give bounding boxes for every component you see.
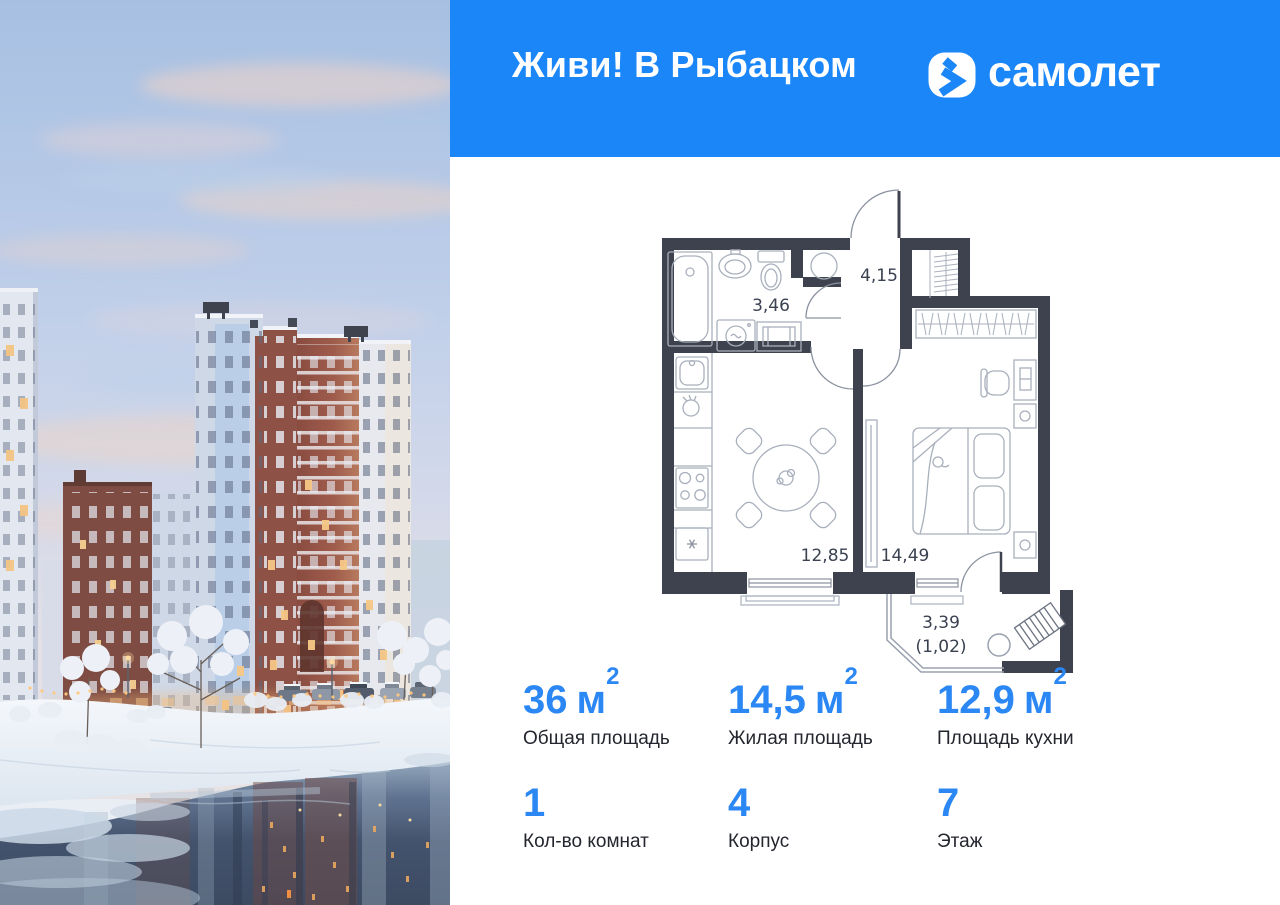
stat-korpus: 4 Корпус <box>728 783 789 853</box>
listing-card: Живи! В Рыбацком самолет <box>0 0 1280 905</box>
balcony-stool <box>988 634 1010 656</box>
stat-floor: 7 Этаж <box>937 783 982 853</box>
stove-icon <box>676 468 708 508</box>
far-left-tower <box>0 288 38 712</box>
stat-floor-value: 7 <box>937 783 982 823</box>
brand-name: самолет <box>988 48 1160 97</box>
building-photo <box>0 0 450 905</box>
room-area-kitchen: 12,85 <box>801 546 850 566</box>
kitchen-sink-icon <box>676 357 708 389</box>
stat-kitchen-area-label: Площадь кухни <box>937 729 1074 750</box>
header-banner: Живи! В Рыбацком самолет <box>450 0 1280 157</box>
stat-floor-label: Этаж <box>937 832 982 853</box>
toilet-icon <box>758 251 784 290</box>
stat-rooms-label: Кол-во комнат <box>523 832 649 853</box>
shelf-icon <box>1014 404 1036 428</box>
room-area-bedroom: 14,49 <box>881 546 930 566</box>
stat-kitchen-area-value: 12,9м2 <box>937 680 1074 720</box>
room-area-hallway: 4,15 <box>860 266 898 286</box>
room-area-balcony: 3,39 <box>922 613 960 633</box>
hall-light-icon <box>811 253 837 279</box>
fridge-icon <box>676 528 708 560</box>
stat-total-area-value: 36м2 <box>523 680 670 720</box>
walls <box>662 238 1073 673</box>
arch <box>300 600 324 672</box>
kitchen-fixtures <box>674 353 839 572</box>
room-area-bathroom: 3,46 <box>752 296 790 316</box>
stat-rooms: 1 Кол-во комнат <box>523 783 649 853</box>
kitchen-light-icon <box>683 395 699 416</box>
brand-logo: самолет <box>928 50 1160 99</box>
bathroom-cabinet-icon <box>757 322 801 351</box>
coat-closet-icon <box>930 250 958 298</box>
bathtub-icon <box>668 252 712 346</box>
bedroom-furniture <box>866 310 1036 567</box>
wardrobe-icon <box>916 310 1036 338</box>
bed-icon <box>913 428 1010 534</box>
stat-rooms-value: 1 <box>523 783 649 823</box>
stat-korpus-label: Корпус <box>728 832 789 853</box>
stat-kitchen-area: 12,9м2 Площадь кухни <box>937 680 1074 750</box>
stat-living-area: 14,5м2 Жилая площадь <box>728 680 873 750</box>
floor-plan: 3,46 4,15 12,85 14,49 3,39 (1,02) <box>650 180 1090 690</box>
project-title: Живи! В Рыбацком <box>512 44 857 86</box>
floor-plan-drawing: 3,46 4,15 12,85 14,49 3,39 (1,02) <box>650 180 1090 690</box>
stat-total-area: 36м2 Общая площадь <box>523 680 670 750</box>
nightstand-icon <box>1014 532 1036 558</box>
building-photo-art <box>0 0 450 905</box>
info-panel: Живи! В Рыбацком самолет <box>450 0 1280 905</box>
tv-panel-icon <box>866 420 877 567</box>
balcony <box>887 594 1065 672</box>
dining-table-icon <box>733 425 838 530</box>
gap-building <box>42 560 63 720</box>
balcony-bench <box>1015 603 1066 650</box>
desk-icon <box>1014 360 1036 400</box>
stat-living-area-value: 14,5м2 <box>728 680 873 720</box>
samolet-icon <box>928 52 976 98</box>
stat-korpus-value: 4 <box>728 783 789 823</box>
desk-chair-icon <box>981 369 1009 397</box>
stat-total-area-label: Общая площадь <box>523 729 670 750</box>
stat-living-area-label: Жилая площадь <box>728 729 873 750</box>
sink-icon <box>719 250 751 278</box>
room-area-balcony-reduced: (1,02) <box>915 637 966 657</box>
